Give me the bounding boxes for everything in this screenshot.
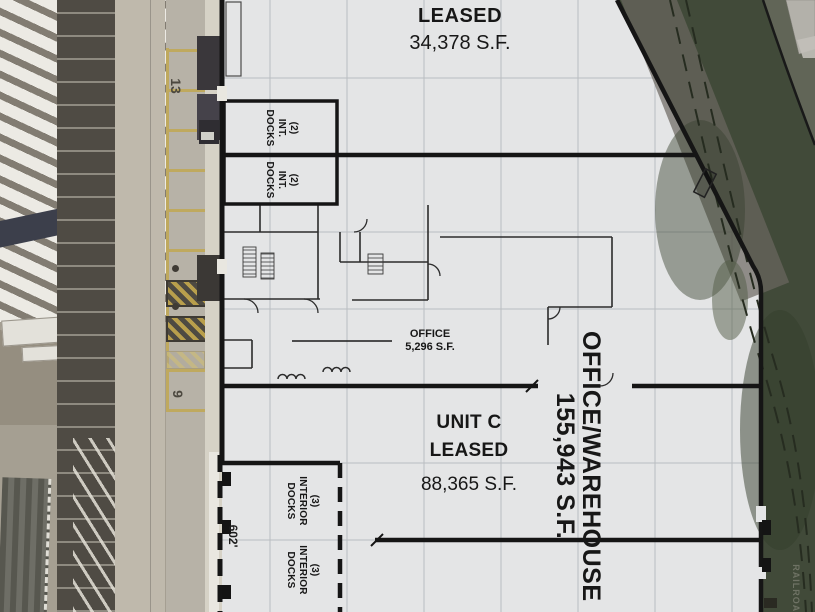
dock-word: DOCKS: [284, 469, 296, 533]
dock-word: INTERIOR: [296, 469, 308, 533]
dock-abbr: INT.: [275, 99, 287, 157]
dock-count: (3): [308, 469, 320, 533]
top-unit-area: 34,378 S.F.: [370, 32, 550, 55]
dock-word: DOCKS: [263, 99, 275, 157]
int-docks-label-1: (2) INT. DOCKS: [257, 99, 305, 157]
office-label: OFFICE 5,296 S.F.: [390, 328, 470, 354]
office-warehouse-name: OFFICE/WAREHOUSE: [578, 331, 604, 601]
office-warehouse-label: OFFICE/WAREHOUSE 155,943 S.F.: [552, 331, 604, 601]
interior-docks-label-1: (3) INTERIOR DOCKS: [273, 469, 331, 533]
site-plan-image: LEASED 34,378 S.F. (2) INT. DOCKS (2) IN…: [0, 0, 815, 612]
dock-count: (2): [287, 151, 299, 209]
int-docks-label-2: (2) INT. DOCKS: [257, 151, 305, 209]
pavement-number-13: 13: [168, 71, 184, 101]
unit-c-area: 88,365 S.F.: [390, 474, 548, 496]
dock-word: DOCKS: [263, 151, 275, 209]
pavement-number-9: 9: [170, 379, 186, 409]
unit-c-status: LEASED: [390, 440, 548, 462]
dock-count: (2): [287, 99, 299, 157]
stall-number: 9: [170, 379, 186, 409]
top-unit-label: LEASED 34,378 S.F.: [370, 5, 550, 55]
dimension-text: 602': [226, 514, 240, 558]
dock-word: INTERIOR: [296, 538, 308, 602]
office-name: OFFICE: [390, 328, 470, 341]
floor-plan-linework: [0, 0, 815, 612]
office-warehouse-area: 155,943 S.F.: [552, 331, 578, 601]
dock-word: DOCKS: [284, 538, 296, 602]
unit-c-name: UNIT C: [390, 412, 548, 434]
office-area: 5,296 S.F.: [390, 341, 470, 354]
stall-number: 13: [168, 71, 184, 101]
dock-count: (3): [308, 538, 320, 602]
dimension-602: 602': [225, 514, 241, 558]
railroad-label: RAILROAD: [790, 562, 802, 612]
dock-abbr: INT.: [275, 151, 287, 209]
unit-c-label: UNIT C LEASED 88,365 S.F.: [390, 412, 548, 496]
interior-docks-label-2: (3) INTERIOR DOCKS: [273, 538, 331, 602]
railroad-text: RAILROAD: [791, 562, 801, 612]
top-unit-status: LEASED: [370, 5, 550, 28]
